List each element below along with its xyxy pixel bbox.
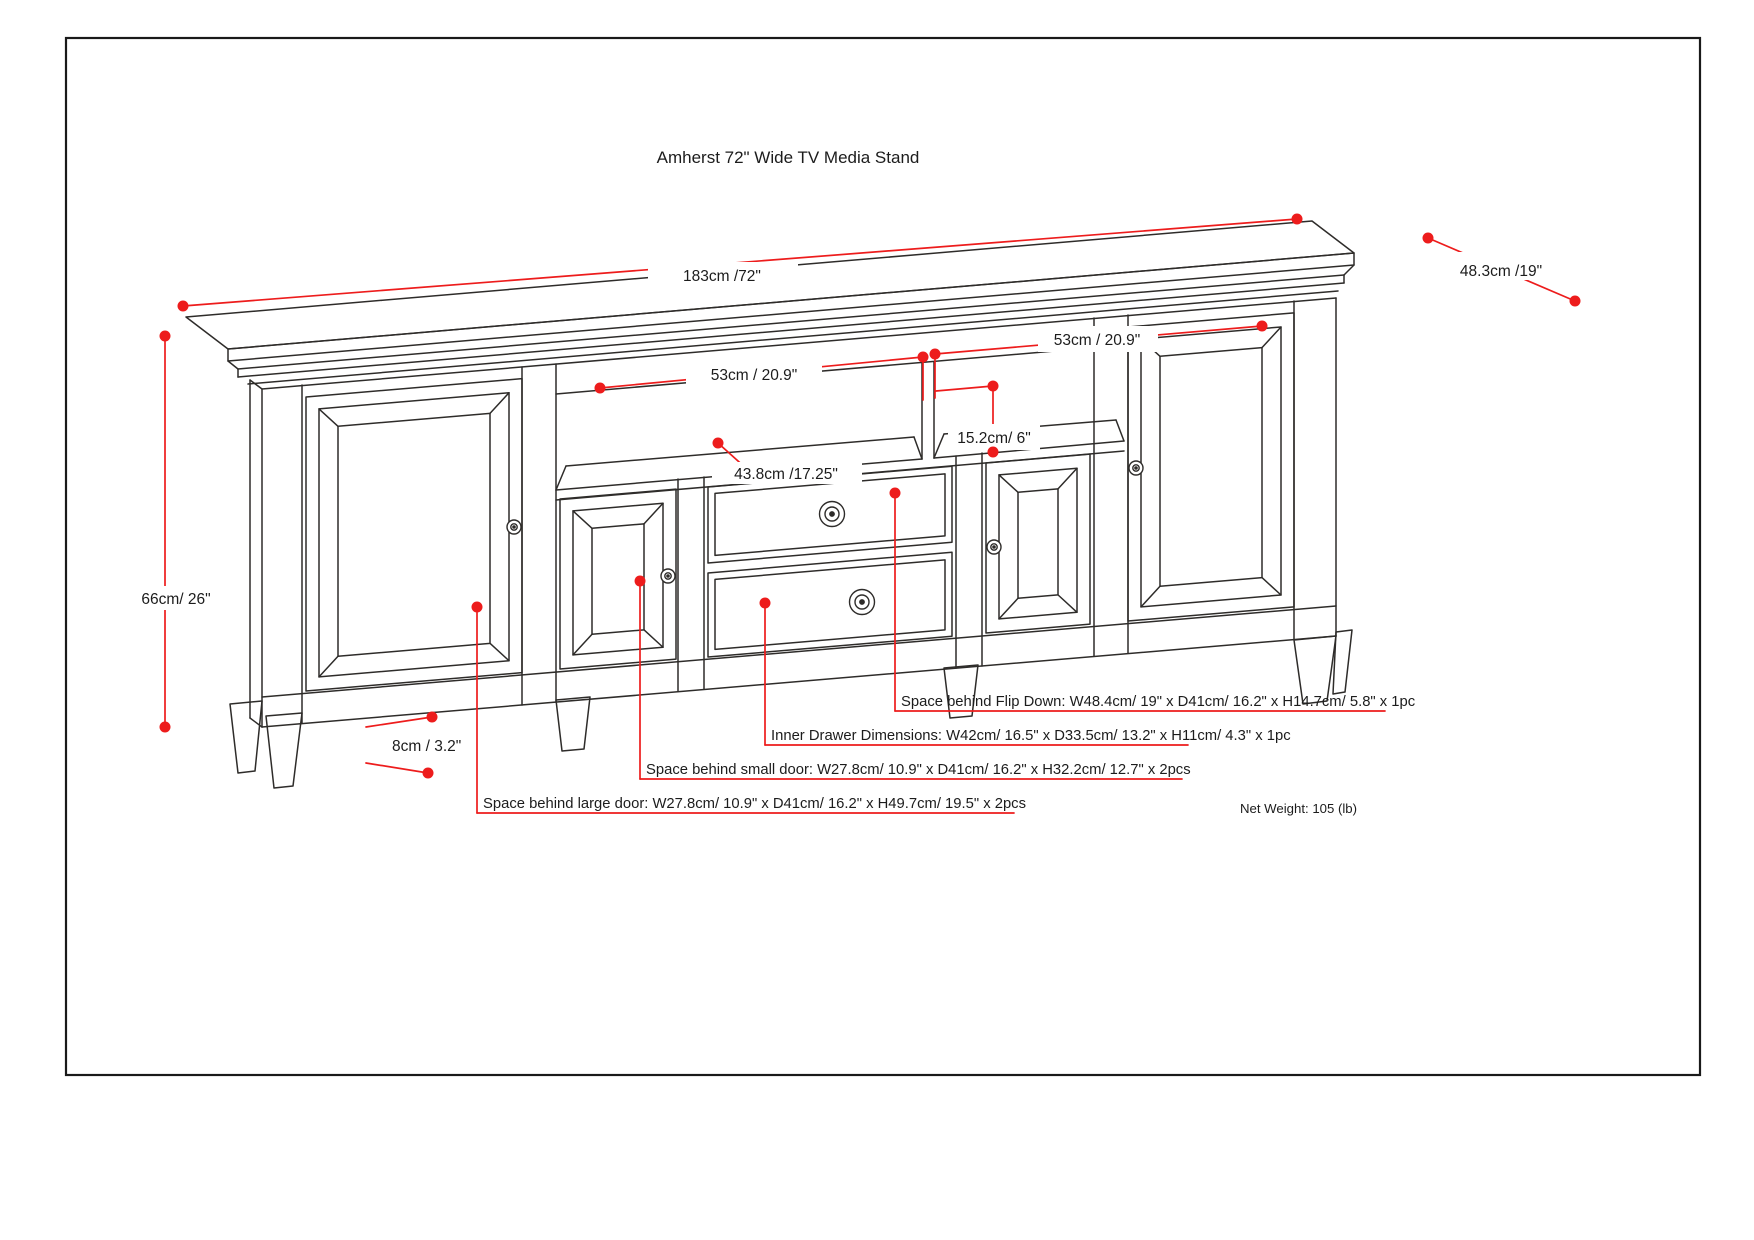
- tv-stand-diagram: Amherst 72" Wide TV Media Stand 183cm /7…: [0, 0, 1754, 1240]
- page-title: Amherst 72" Wide TV Media Stand: [657, 148, 920, 167]
- spec-sheet-page: Amherst 72" Wide TV Media Stand 183cm /7…: [0, 0, 1754, 1240]
- dim-overall-width-label: 183cm /72": [683, 268, 761, 285]
- dim-shelf-left-width-label: 53cm / 20.9": [711, 367, 798, 384]
- annotation-flip-down: Space behind Flip Down: W48.4cm/ 19" x D…: [901, 694, 1416, 710]
- dim-overall-depth-label: 48.3cm /19": [1460, 263, 1542, 280]
- page-border: [66, 38, 1700, 1075]
- annotation-large-door: Space behind large door: W27.8cm/ 10.9" …: [483, 796, 1026, 812]
- dim-leg-clearance-label: 8cm / 3.2": [392, 738, 461, 755]
- dim-shelf-depth-label: 43.8cm /17.25": [734, 466, 838, 483]
- dim-overall-height-label: 66cm/ 26": [141, 591, 210, 608]
- annotation-small-door: Space behind small door: W27.8cm/ 10.9" …: [646, 762, 1191, 778]
- dim-shelf-opening-height-label: 15.2cm/ 6": [957, 430, 1031, 447]
- dim-shelf-right-width-label: 53cm / 20.9": [1054, 332, 1141, 349]
- annotation-inner-drawer: Inner Drawer Dimensions: W42cm/ 16.5" x …: [771, 728, 1291, 744]
- net-weight-label: Net Weight: 105 (lb): [1240, 801, 1357, 816]
